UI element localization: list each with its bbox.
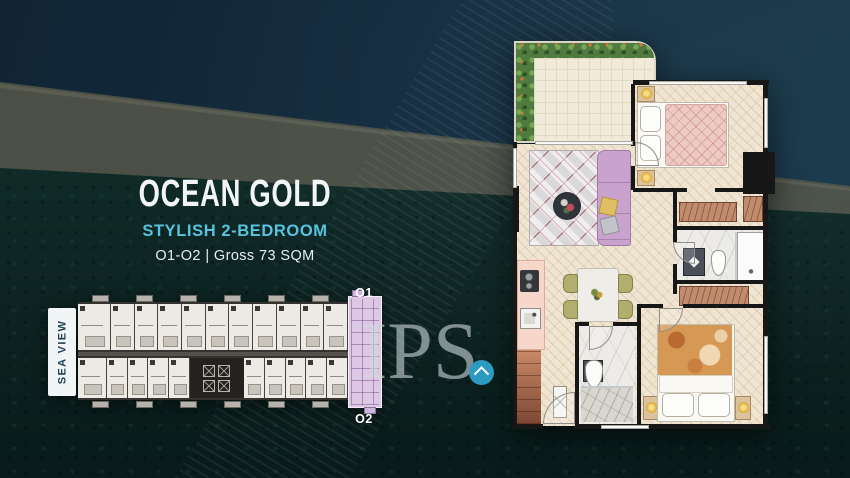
coffee-table bbox=[553, 192, 581, 220]
dining-chair bbox=[618, 300, 633, 319]
window bbox=[764, 336, 768, 414]
wall bbox=[677, 226, 765, 230]
key-plan-unit bbox=[301, 304, 325, 350]
wall bbox=[715, 188, 767, 192]
key-plan-unit bbox=[253, 304, 277, 350]
planter-top bbox=[516, 43, 654, 58]
dining-chair bbox=[618, 274, 633, 293]
balcony-tab bbox=[136, 295, 153, 302]
lamp-icon bbox=[646, 402, 657, 413]
wardrobe bbox=[679, 202, 737, 222]
elevator-core bbox=[190, 358, 244, 398]
balcony-tab bbox=[268, 295, 285, 302]
key-plan-unit bbox=[111, 304, 135, 350]
key-plan-unit bbox=[148, 358, 169, 398]
key-plan: SEA VIEW O1 O2 bbox=[46, 286, 398, 428]
lamp-icon bbox=[641, 88, 652, 99]
balcony-tab bbox=[180, 295, 197, 302]
balcony-tab bbox=[268, 401, 285, 408]
unit-label-o1: O1 bbox=[346, 286, 382, 300]
wall bbox=[633, 188, 687, 192]
lamp-icon bbox=[738, 402, 749, 413]
key-plan-unit bbox=[107, 358, 128, 398]
sea-view-badge: SEA VIEW bbox=[48, 308, 76, 396]
key-plan-unit bbox=[306, 358, 327, 398]
key-plan-unit bbox=[128, 358, 149, 398]
key-plan-unit bbox=[158, 304, 182, 350]
window bbox=[649, 81, 747, 85]
shower bbox=[737, 232, 765, 282]
key-plan-unit bbox=[327, 358, 348, 398]
balcony-tab bbox=[224, 295, 241, 302]
bed-pillow bbox=[698, 393, 730, 417]
wardrobe bbox=[743, 196, 763, 222]
wall bbox=[677, 280, 765, 284]
table-centerpiece bbox=[589, 286, 605, 302]
balcony-tab bbox=[92, 295, 109, 302]
watermark-logo-circle bbox=[469, 360, 494, 385]
sea-view-label: SEA VIEW bbox=[56, 320, 68, 385]
unit-info: O1-O2 | Gross 73 SQM bbox=[85, 248, 385, 264]
kitchen-cabinet bbox=[517, 350, 541, 424]
shower-glass bbox=[735, 232, 737, 280]
project-title: OCEAN GOLD bbox=[127, 176, 343, 212]
sofa-pillow-yellow bbox=[598, 196, 618, 216]
balcony-tab bbox=[136, 401, 153, 408]
window bbox=[535, 141, 633, 145]
wall bbox=[683, 304, 767, 308]
key-plan-row-bottom bbox=[78, 356, 348, 400]
master-duvet bbox=[665, 104, 727, 166]
bed-sheet bbox=[659, 375, 733, 393]
balcony-tab bbox=[92, 401, 109, 408]
balcony-tab bbox=[224, 401, 241, 408]
marketing-image: OCEAN GOLD STYLISH 2-BEDROOM O1-O2 | Gro… bbox=[0, 0, 850, 478]
key-plan-unit bbox=[78, 304, 111, 350]
lamp-icon bbox=[641, 172, 652, 183]
key-plan-unit bbox=[206, 304, 230, 350]
chevron-up-icon bbox=[474, 366, 490, 382]
key-plan-unit bbox=[135, 304, 159, 350]
unit-type-subtitle: STYLISH 2-BEDROOM bbox=[85, 222, 385, 241]
headline-block: OCEAN GOLD STYLISH 2-BEDROOM O1-O2 | Gro… bbox=[85, 176, 385, 264]
key-plan-unit bbox=[277, 304, 301, 350]
floor-plan[interactable] bbox=[513, 40, 777, 434]
wall bbox=[613, 322, 639, 326]
shower-area bbox=[581, 388, 633, 422]
dining-chair bbox=[563, 274, 578, 293]
key-plan-unit bbox=[182, 304, 206, 350]
kitchen-sink bbox=[520, 308, 541, 329]
wall bbox=[631, 166, 635, 190]
bed-pillow bbox=[640, 106, 661, 132]
window bbox=[764, 98, 768, 148]
wall bbox=[673, 192, 677, 242]
wardrobe bbox=[679, 286, 749, 306]
bed-pillow bbox=[662, 393, 694, 417]
shower-glass bbox=[581, 386, 633, 388]
balcony-tab bbox=[312, 401, 329, 408]
key-plan-unit bbox=[229, 304, 253, 350]
wall bbox=[513, 186, 519, 232]
window bbox=[601, 425, 649, 429]
key-plan-unit bbox=[244, 358, 265, 398]
key-plan-row-top bbox=[78, 302, 348, 352]
wall bbox=[631, 84, 635, 146]
key-plan-unit bbox=[78, 358, 107, 398]
stove bbox=[520, 270, 539, 292]
balcony-tab bbox=[312, 295, 329, 302]
key-plan-unit bbox=[324, 304, 348, 350]
bedroom2-duvet bbox=[658, 325, 732, 375]
key-plan-unit bbox=[286, 358, 307, 398]
dining-chair bbox=[563, 300, 578, 319]
unit-label-o2: O2 bbox=[346, 412, 382, 426]
wall bbox=[673, 264, 677, 294]
wall bbox=[513, 424, 543, 429]
key-plan-unit bbox=[169, 358, 190, 398]
key-plan-unit bbox=[265, 358, 286, 398]
wall bbox=[575, 322, 579, 426]
balcony-tab bbox=[180, 401, 197, 408]
window bbox=[513, 148, 517, 188]
